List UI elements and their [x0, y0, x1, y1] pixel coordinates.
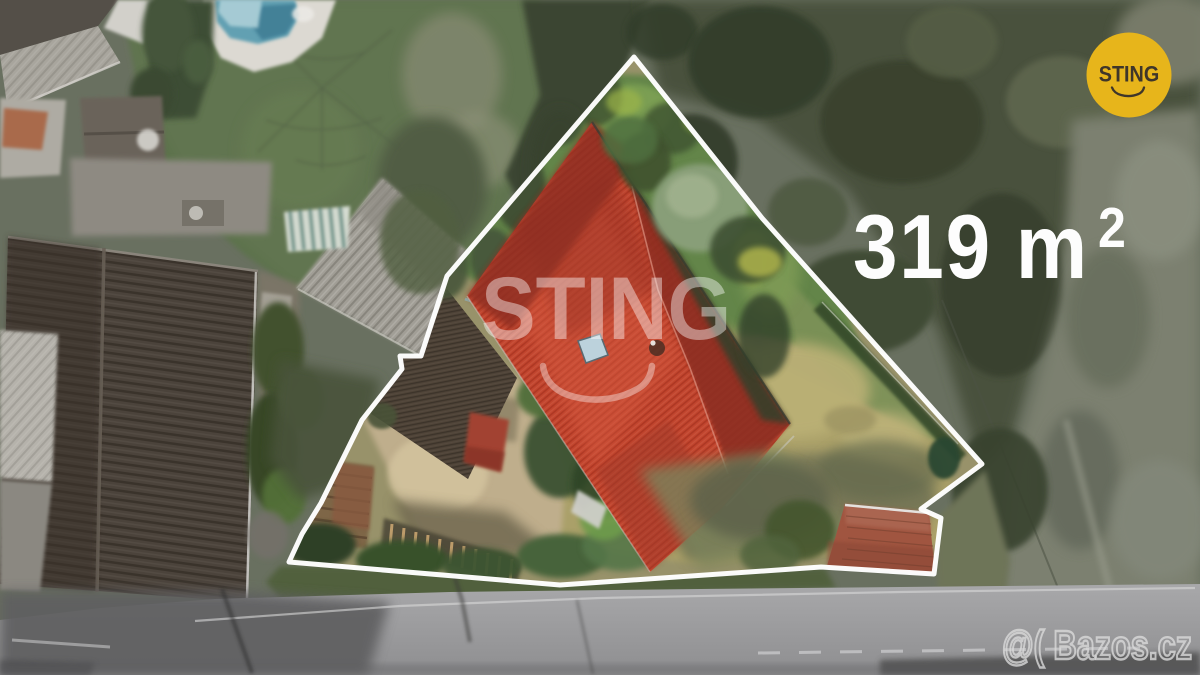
svg-text:319 m: 319 m	[853, 196, 1089, 298]
svg-text:STING: STING	[481, 260, 731, 359]
svg-text:STING: STING	[1099, 63, 1159, 87]
svg-text:@( Bazos.cz: @( Bazos.cz	[1002, 622, 1192, 667]
svg-text:2: 2	[1098, 196, 1126, 260]
